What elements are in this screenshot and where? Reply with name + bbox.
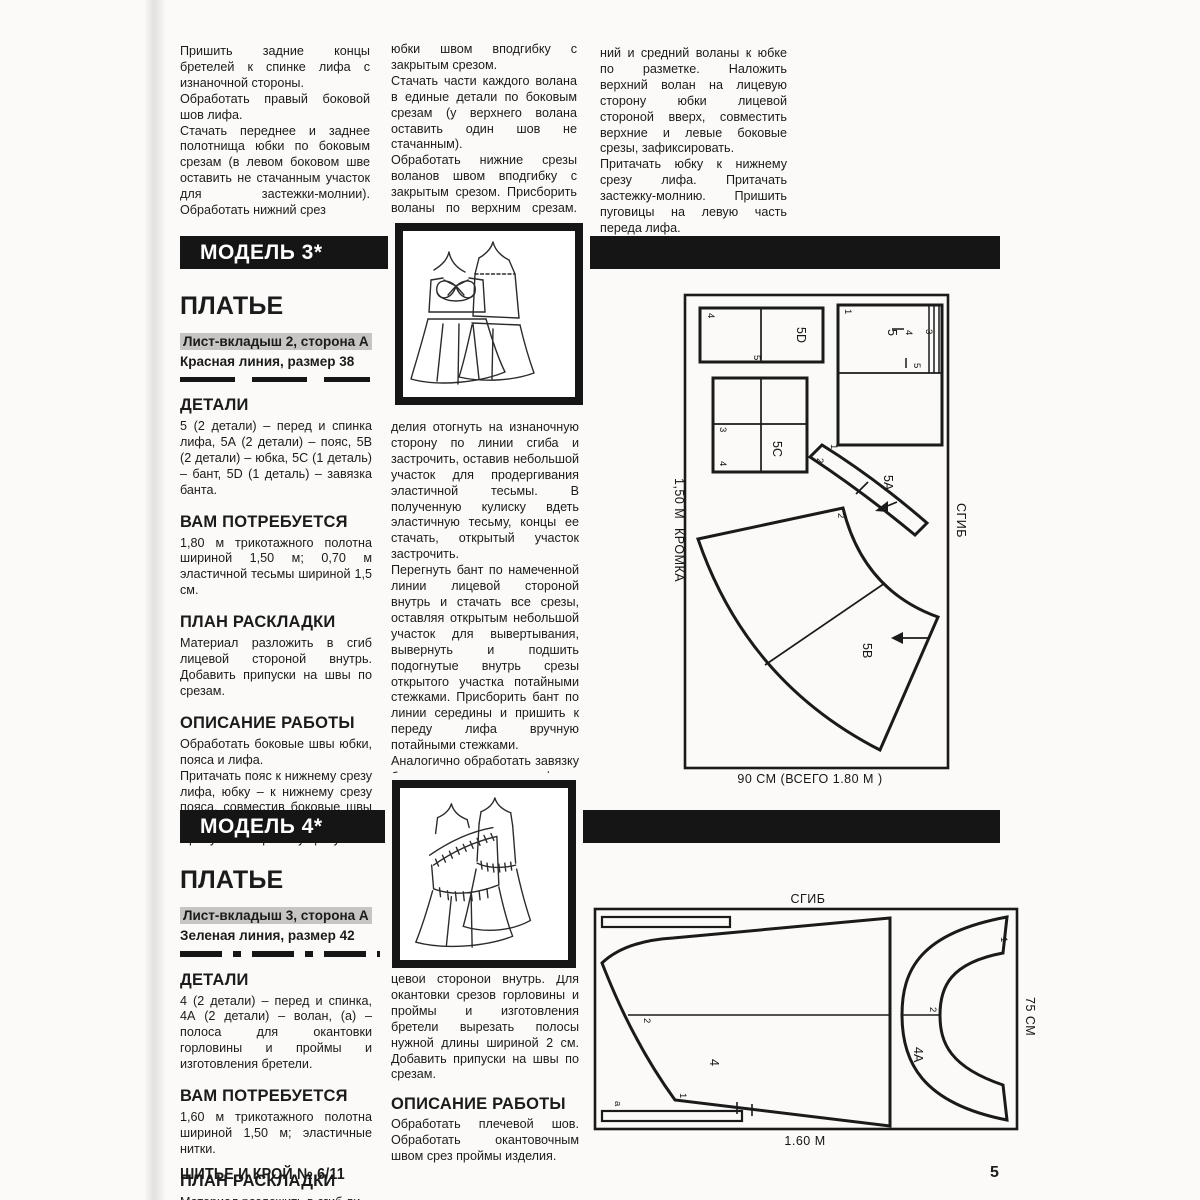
model4-banner: МОДЕЛЬ 4*	[180, 810, 1000, 843]
scan-edge-shading	[144, 0, 166, 1200]
back-bodice	[473, 258, 519, 318]
page-number: 5	[990, 1164, 999, 1182]
model4-layout-svg: СГИБ а 2 4 1 2 4А 1 75 СМ 1.60 М	[590, 885, 1040, 1165]
paragraph: Притачать юбку к нижнему срезу лифа. При…	[600, 157, 787, 237]
piece-5c-outline	[713, 378, 807, 472]
mark-5: 5	[911, 363, 922, 368]
binding-strip-top	[602, 917, 730, 927]
selvedge-label: КРОМКА	[672, 528, 686, 582]
mark-4: 4	[717, 461, 728, 466]
front-underbust	[437, 292, 475, 301]
model3-details-text: 5 (2 детали) – перед и спинка лифа, 5А (…	[180, 419, 372, 499]
back-straps	[479, 812, 513, 826]
model3-line-size: Красная линия, размер 38	[180, 354, 372, 369]
magazine-page: Пришить задние концы бретелей к спинке л…	[0, 0, 1200, 1200]
model3-dress-illustration	[403, 231, 575, 397]
model3-pattern-line-sample	[180, 377, 370, 382]
paragraph: Обработать нижние срезы воланов швом впо…	[391, 153, 577, 233]
paragraph: Перегнуть бант по намеченной линии лицев…	[391, 563, 579, 754]
paragraph: Обработать плечевой шов. Обработать окан…	[391, 1117, 579, 1165]
front-figure-neck	[438, 804, 468, 820]
model3-banner: МОДЕЛЬ 3*	[180, 236, 1000, 269]
piece-5c-label: 5С	[770, 441, 784, 457]
model4-pattern-line-sample	[180, 951, 380, 957]
layout-height-label: 75 СМ	[1023, 997, 1037, 1036]
model4-instructions-column: цевой стороной внутрь. Для окантовки сре…	[391, 972, 579, 1165]
model4-layout-diagram: СГИБ а 2 4 1 2 4А 1 75 СМ 1.60 М	[590, 885, 1040, 1170]
paragraph: Стачать переднее и заднее полотнища юбки…	[180, 124, 370, 219]
piece-4-label: 4	[707, 1059, 721, 1066]
mark-2: 2	[641, 1018, 652, 1023]
binding-strip-bottom	[602, 1111, 742, 1121]
model4-work-heading: ОПИСАНИЕ РАБОТЫ	[391, 1097, 579, 1113]
piece-5-label: 5	[885, 329, 899, 336]
paragraph: ний и средний воланы к юбке по разметке.…	[600, 46, 787, 157]
model3-details-heading: ДЕТАЛИ	[180, 396, 372, 415]
mark-2: 2	[814, 458, 825, 463]
model3-work-heading: ОПИСАНИЕ РАБОТЫ	[180, 714, 372, 733]
model4-illustration-frame	[392, 780, 576, 968]
top-column-1: Пришить задние концы бретелей к спинке л…	[180, 44, 370, 219]
mark-3: 3	[923, 329, 934, 334]
model4-line-size: Зеленая линия, размер 42	[180, 928, 372, 943]
model4-details-heading: ДЕТАЛИ	[180, 971, 372, 990]
layout-width-label: 90 СМ (ВСЕГО 1.80 М )	[737, 772, 882, 786]
paragraph: юбки швом вподгибку с закрытым срезом.	[391, 42, 577, 74]
back-skirt	[463, 869, 530, 930]
fold-label: СГИБ	[791, 892, 826, 906]
front-bow	[437, 280, 476, 298]
mark-a: а	[612, 1101, 623, 1107]
back-waistband	[472, 316, 520, 325]
mark-3: 3	[717, 427, 728, 432]
top-column-2: юбки швом вподгибку с закрытым срезом. С…	[391, 42, 577, 233]
front-figure-neck	[434, 252, 465, 272]
mark-2: 2	[927, 1007, 938, 1012]
model3-banner-label: МОДЕЛЬ 3*	[200, 241, 323, 265]
model3-need-heading: ВАМ ПОТРЕБУЕТСЯ	[180, 513, 372, 532]
model4-dress-illustration	[400, 788, 568, 960]
model3-illustration-frame	[395, 223, 583, 405]
mark-1: 1	[998, 937, 1009, 942]
mark-4: 4	[705, 313, 716, 318]
model4-plan-text: Материал разложить в сгиб ли-	[180, 1195, 372, 1200]
piece-4a-outline	[902, 917, 1007, 1120]
model3-title: ПЛАТЬЕ	[180, 292, 372, 321]
model3-instructions-column: делия отогнуть на изнаночную сторону по …	[391, 420, 579, 802]
model4-sheet-reference: Лист-вкладыш 3, сторона А	[180, 907, 372, 924]
front-waist-gather	[434, 885, 499, 901]
model3-layout-diagram: 4 5 5D 3 4 5С 1 5 4 3 5 1 2 5А 2 5В 1,50…	[650, 285, 990, 795]
front-bodice-sides	[432, 836, 499, 888]
piece-5b-label: 5В	[860, 643, 874, 658]
back-figure-neck	[481, 798, 511, 813]
paragraph: делия отогнуть на изнаночную сторону по …	[391, 420, 579, 563]
model3-layout-svg: 4 5 5D 3 4 5С 1 5 4 3 5 1 2 5А 2 5В 1,50…	[650, 285, 990, 790]
model4-need-heading: ВАМ ПОТРЕБУЕТСЯ	[180, 1087, 372, 1106]
model4-info-column: ПЛАТЬЕ Лист-вкладыш 3, сторона А Зеленая…	[180, 866, 372, 1200]
paragraph: Пришить задние концы бретелей к спинке л…	[180, 44, 370, 92]
back-figure-neck	[479, 242, 509, 260]
model3-need-text: 1,80 м трикотажного полотна шириной 1,50…	[180, 536, 372, 600]
model3-plan-heading: ПЛАН РАСКЛАДКИ	[180, 613, 372, 632]
mark-4: 4	[903, 330, 914, 335]
model4-title: ПЛАТЬЕ	[180, 866, 372, 895]
model3-sheet-reference: Лист-вкладыш 2, сторона А	[180, 333, 372, 350]
model4-details-text: 4 (2 детали) – перед и спинка, 4А (2 дет…	[180, 994, 372, 1074]
shoulder-ruffle	[430, 828, 497, 867]
front-skirt-folds	[437, 324, 479, 384]
paragraph: Обработать боковые швы юбки, пояса и лиф…	[180, 737, 372, 769]
mark-1: 1	[677, 1093, 688, 1098]
fold-label: СГИБ	[954, 503, 968, 538]
model3-plan-text: Материал разложить в сгиб лицевой сторон…	[180, 636, 372, 700]
paragraph: Обработать правый боковой шов лифа.	[180, 92, 370, 124]
piece-5b-arrowhead	[891, 632, 903, 644]
model3-info-column: ПЛАТЬЕ Лист-вкладыш 2, сторона А Красная…	[180, 292, 372, 848]
mark-2: 2	[835, 513, 846, 518]
mark-1: 1	[828, 444, 839, 449]
model4-need-text: 1,60 м трикотажного полотна шириной 1,50…	[180, 1110, 372, 1158]
layout-width-label: 1.60 М	[784, 1134, 825, 1148]
mark-5: 5	[751, 355, 762, 360]
piece-5a-outline	[810, 445, 927, 535]
layout-frame	[595, 909, 1017, 1129]
front-straps	[436, 818, 470, 834]
piece-5-outline	[838, 305, 942, 445]
magazine-footer-brand: ШИТЬЕ И КРОЙ № 6/11	[180, 1166, 345, 1184]
piece-5a-label: 5А	[881, 475, 895, 491]
paragraph: Стачать части каждого волана в единые де…	[391, 74, 577, 154]
selvedge-label-width: 1,50 М	[672, 478, 686, 519]
piece-5d-label: 5D	[794, 327, 808, 343]
piece-4a-label: 4А	[911, 1047, 925, 1063]
back-waist-gather	[477, 861, 516, 872]
top-column-3: ний и средний воланы к юбке по разметке.…	[600, 46, 787, 237]
mark-1: 1	[842, 309, 853, 314]
model4-banner-label: МОДЕЛЬ 4*	[200, 815, 323, 839]
paragraph: цевой стороной внутрь. Для окантовки сре…	[391, 972, 579, 1083]
